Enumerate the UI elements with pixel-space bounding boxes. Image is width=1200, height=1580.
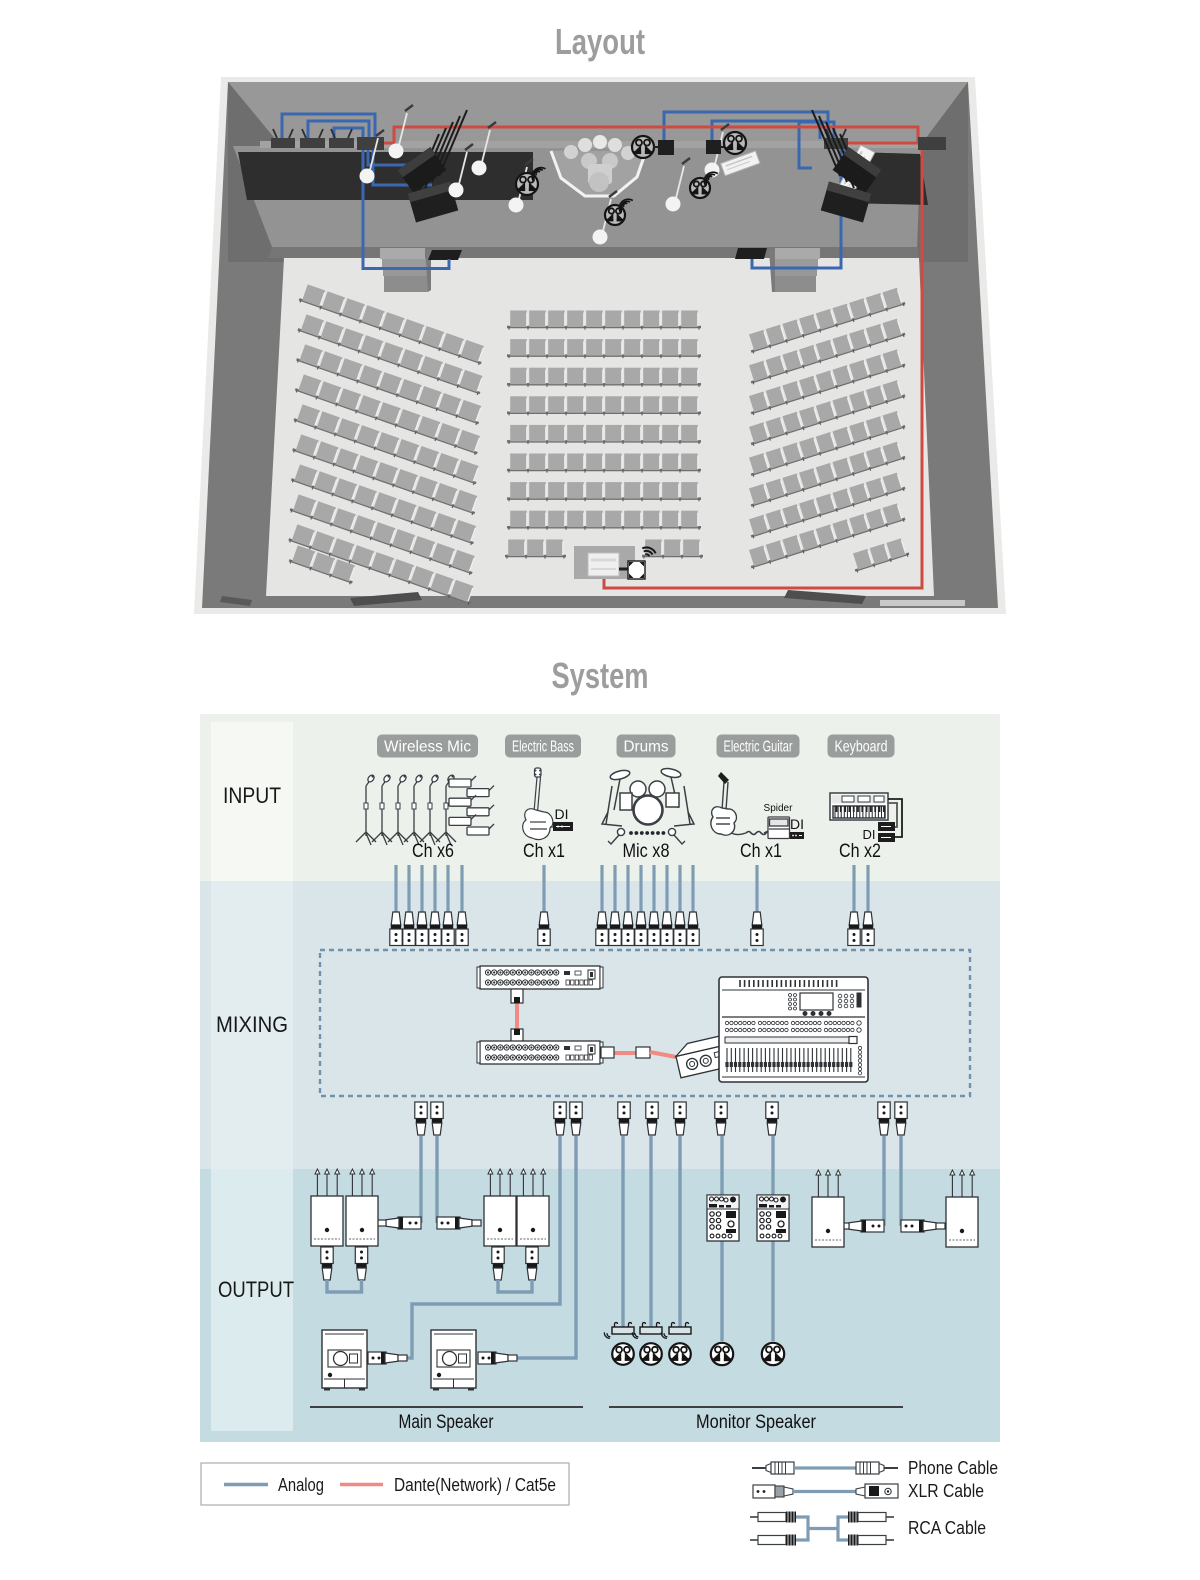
svg-text:DI: DI [555, 806, 569, 822]
svg-text:XLR Cable: XLR Cable [908, 1481, 984, 1501]
svg-text:Analog: Analog [278, 1475, 324, 1495]
svg-text:Dante(Network) / Cat5e: Dante(Network) / Cat5e [394, 1475, 556, 1495]
svg-text:Ch x1: Ch x1 [523, 841, 565, 862]
svg-text:RCA Cable: RCA Cable [908, 1518, 986, 1538]
svg-text:Phone Cable: Phone Cable [908, 1458, 998, 1478]
svg-text:Ch x1: Ch x1 [740, 841, 782, 862]
svg-text:Ch x6: Ch x6 [412, 841, 454, 862]
svg-text:Main Speaker: Main Speaker [399, 1412, 495, 1433]
svg-text:Monitor Speaker: Monitor Speaker [696, 1412, 817, 1433]
svg-text:Mic x8: Mic x8 [623, 841, 670, 862]
svg-text:Drums: Drums [624, 739, 669, 756]
svg-text:Wireless Mic: Wireless Mic [384, 739, 471, 756]
svg-text:MIXING: MIXING [216, 1012, 288, 1037]
svg-text:Keyboard: Keyboard [835, 739, 888, 756]
svg-text:INPUT: INPUT [223, 783, 281, 808]
svg-text:Electric Bass: Electric Bass [512, 739, 574, 756]
svg-text:DI: DI [863, 827, 876, 842]
svg-text:Electric Guitar: Electric Guitar [724, 739, 793, 756]
svg-text:Layout: Layout [555, 21, 645, 62]
svg-text:Spider: Spider [764, 803, 794, 814]
svg-text:Ch x2: Ch x2 [839, 841, 881, 862]
svg-text:OUTPUT: OUTPUT [218, 1277, 294, 1302]
svg-text:System: System [552, 655, 649, 696]
svg-text:DI: DI [790, 816, 804, 832]
